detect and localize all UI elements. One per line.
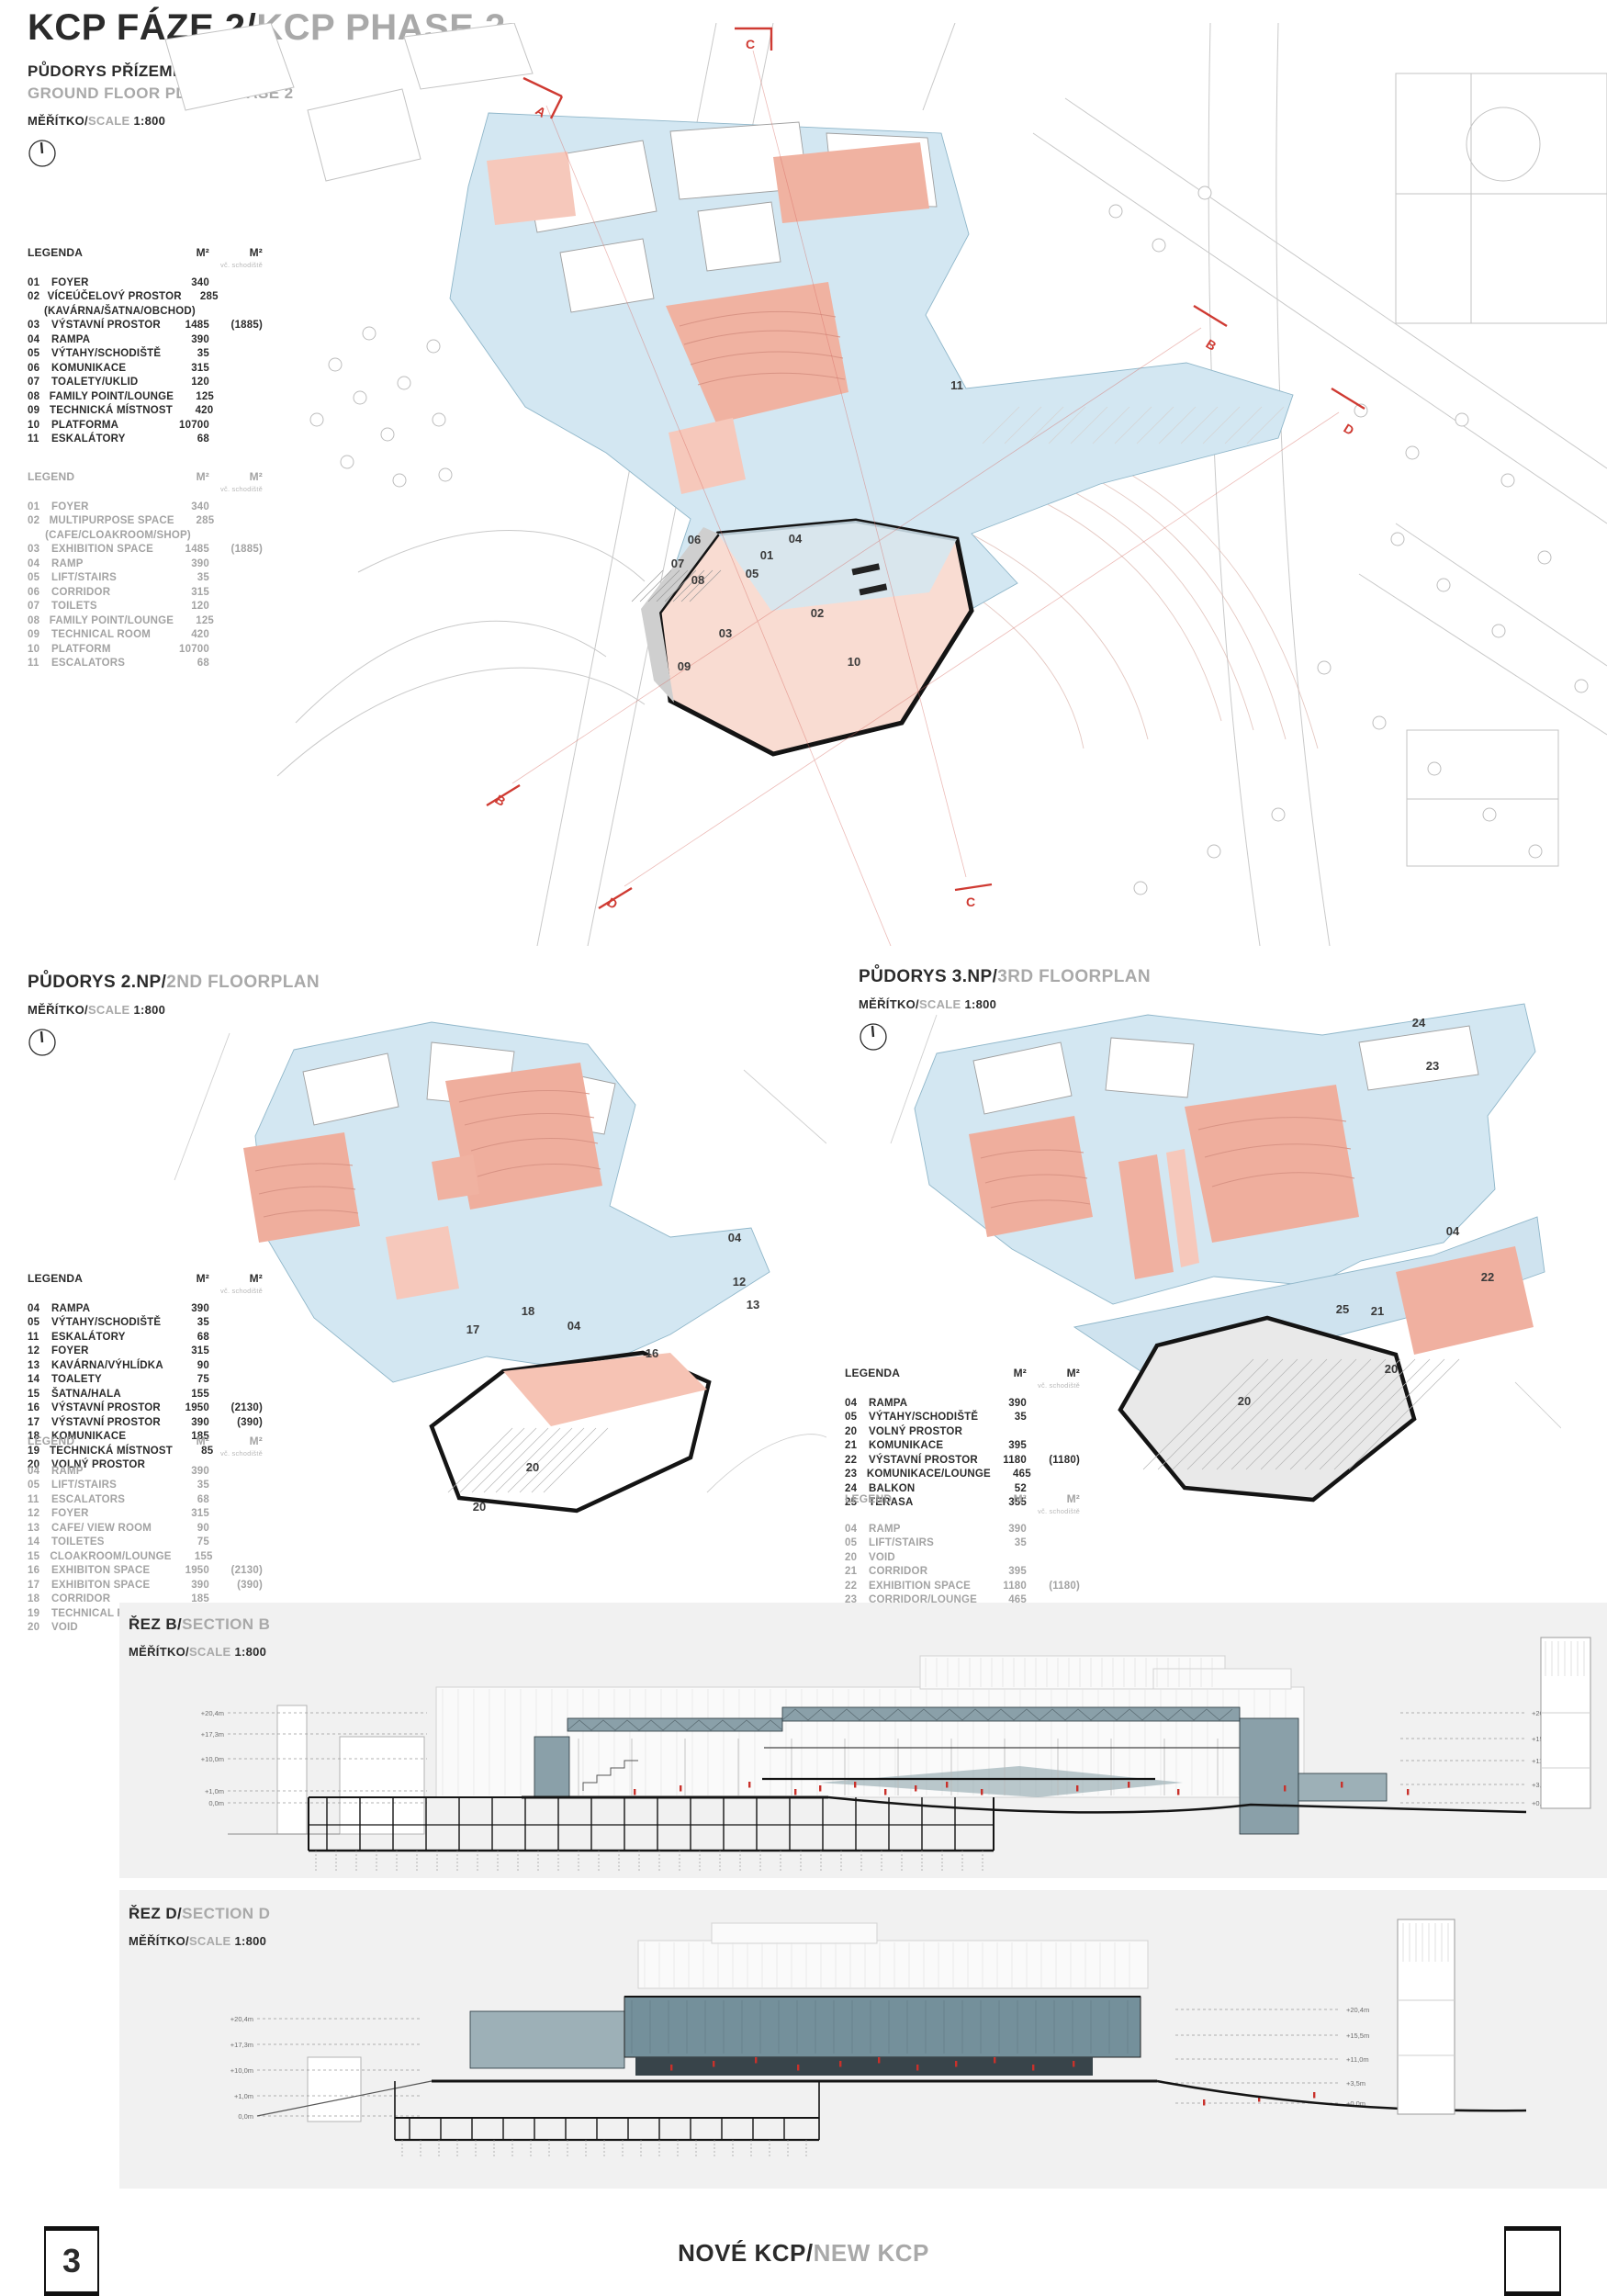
legend-row: 12FOYER315 — [28, 1507, 263, 1522]
svg-text:04: 04 — [568, 1319, 581, 1333]
svg-text:B: B — [492, 792, 508, 809]
svg-text:20: 20 — [1385, 1362, 1398, 1376]
legend-row: 15ŠATNA/HALA155 — [28, 1388, 263, 1402]
svg-text:10: 10 — [848, 655, 860, 669]
ground-floor-plan: A C B D B D C 01 02 03 04 05 06 07 08 09… — [129, 23, 1607, 946]
svg-text:+11,0m: +11,0m — [1346, 2055, 1369, 2064]
forum-hall-fan — [243, 1132, 360, 1243]
legend-row: 11ESCALATORS68 — [28, 1493, 263, 1508]
svg-text:+1,0m: +1,0m — [205, 1787, 224, 1795]
legend-row: 05VÝTAHY/SCHODIŠTĚ35 — [845, 1411, 1080, 1425]
legend-row: 17VÝSTAVNÍ PROSTOR390(390) — [28, 1416, 263, 1431]
svg-text:0,0m: 0,0m — [208, 1799, 224, 1807]
legend-row: 21KOMUNIKACE395 — [845, 1439, 1080, 1454]
svg-text:04: 04 — [1446, 1224, 1460, 1238]
svg-text:12: 12 — [733, 1275, 746, 1289]
legend-header: LEGENDM²M²vč. schodiště — [28, 1435, 263, 1449]
legend-row: 17EXHIBITON SPACE390(390) — [28, 1579, 263, 1593]
legend-row: 05LIFT/STAIRS35 — [845, 1536, 1080, 1551]
svg-text:25: 25 — [1336, 1302, 1349, 1316]
hall-block-west — [487, 152, 576, 225]
legend-row: 14TOILETES75 — [28, 1536, 263, 1550]
svg-text:01: 01 — [760, 548, 773, 562]
svg-text:24: 24 — [1412, 1016, 1426, 1030]
section-b-drawing: +20,4m +17,3m +10,0m +1,0m 0,0m +20,4m +… — [119, 1603, 1607, 1878]
legend-row: 04RAMPA390 — [845, 1397, 1080, 1412]
svg-text:+10,0m: +10,0m — [201, 1755, 224, 1763]
svg-text:04: 04 — [728, 1231, 742, 1244]
svg-text:05: 05 — [746, 567, 759, 580]
right-tower — [1398, 1919, 1455, 2114]
svg-text:+10,0m: +10,0m — [230, 2066, 253, 2075]
section-d-title: ŘEZ D/SECTION D MĚŘÍTKO/SCALE 1:800 — [129, 1903, 270, 1953]
legend-row: 04RAMP390 — [28, 1465, 263, 1480]
svg-text:+20,4m: +20,4m — [201, 1709, 224, 1717]
legend-row: 11ESKALÁTORY68 — [28, 1331, 263, 1345]
congress-hall-fan — [1185, 1085, 1359, 1243]
svg-text:03: 03 — [719, 626, 732, 640]
section-d-drawing: +20,4m +17,3m +10,0m +1,0m 0,0m +20,4m +… — [119, 1890, 1607, 2189]
svg-text:02: 02 — [811, 606, 824, 620]
svg-text:11: 11 — [950, 378, 963, 392]
svg-text:23: 23 — [1426, 1059, 1439, 1073]
legend-row: 22VÝSTAVNÍ PROSTOR1180(1180) — [845, 1454, 1080, 1469]
footer-title: NOVÉ KCP/NEW KCP — [0, 2239, 1607, 2268]
section-b-title: ŘEZ B/SECTION B MĚŘÍTKO/SCALE 1:800 — [129, 1614, 270, 1663]
legend-header: LEGENDAM²M²vč. schodiště — [28, 1272, 263, 1287]
svg-text:04: 04 — [789, 532, 803, 546]
svg-text:C: C — [966, 895, 975, 909]
svg-text:18: 18 — [522, 1304, 534, 1318]
svg-text:+15,5m: +15,5m — [1346, 2032, 1369, 2040]
legend-row: 13KAVÁRNA/VÝHLÍDKA90 — [28, 1359, 263, 1374]
new-hall — [432, 1353, 709, 1511]
section-d-scale: MĚŘÍTKO/SCALE 1:800 — [129, 1930, 270, 1953]
svg-text:07: 07 — [671, 557, 684, 570]
new-hall — [641, 521, 972, 754]
legend-header: LEGENDAM²M²vč. schodiště — [845, 1367, 1080, 1381]
legend-row: 16EXHIBITON SPACE1950(2130) — [28, 1564, 263, 1579]
legend-row: 22EXHIBITION SPACE1180(1180) — [845, 1580, 1080, 1594]
legend-row: 20VOID — [845, 1551, 1080, 1566]
svg-text:+20,4m: +20,4m — [230, 2015, 253, 2023]
svg-text:+17,3m: +17,3m — [201, 1730, 224, 1739]
svg-text:22: 22 — [1481, 1270, 1494, 1284]
svg-text:21: 21 — [1371, 1304, 1384, 1318]
north-icon — [28, 139, 57, 168]
svg-text:+3,5m: +3,5m — [1346, 2079, 1365, 2088]
svg-text:20: 20 — [526, 1460, 539, 1474]
forum-hall-fan — [969, 1116, 1093, 1237]
svg-text:C: C — [746, 37, 755, 51]
section-b-scale: MĚŘÍTKO/SCALE 1:800 — [129, 1641, 270, 1663]
legend-row: 12FOYER315 — [28, 1345, 263, 1359]
legend-row: 04RAMP390 — [845, 1523, 1080, 1537]
svg-text:D: D — [604, 895, 620, 912]
svg-text:20: 20 — [473, 1500, 486, 1514]
legend-row: 04RAMPA390 — [28, 1302, 263, 1317]
svg-text:+20,4m: +20,4m — [1346, 2006, 1369, 2014]
legend-row: 21CORRIDOR395 — [845, 1565, 1080, 1580]
svg-text:+17,3m: +17,3m — [230, 2041, 253, 2049]
small-block — [432, 1154, 479, 1200]
svg-text:+1,0m: +1,0m — [234, 2092, 253, 2100]
legend-row: 20VOLNÝ PROSTOR — [845, 1425, 1080, 1440]
svg-text:20: 20 — [1238, 1394, 1251, 1408]
svg-text:16: 16 — [646, 1346, 658, 1360]
legend-row: 16VÝSTAVNÍ PROSTOR1950(2130) — [28, 1401, 263, 1416]
legend-row: 05VÝTAHY/SCHODIŠTĚ35 — [28, 1316, 263, 1331]
svg-text:08: 08 — [691, 573, 704, 587]
multipurpose-block — [386, 1226, 459, 1300]
left-context-building — [308, 2057, 361, 2122]
legend-row: 13CAFE/ VIEW ROOM90 — [28, 1522, 263, 1536]
legend-np3-cs: LEGENDAM²M²vč. schodiště04RAMPA39005VÝTA… — [845, 1367, 1080, 1511]
north-icon — [28, 1028, 57, 1057]
new-hall-roof — [1120, 1318, 1414, 1500]
svg-text:B: B — [1203, 336, 1219, 354]
presentation-board: KCP FÁZE 2/KCP PHASE 2 PŮDORYS PŘÍZEMÍ -… — [0, 0, 1607, 2296]
svg-text:D: D — [1341, 421, 1356, 438]
svg-text:09: 09 — [678, 659, 691, 673]
svg-text:0,0m: 0,0m — [238, 2112, 253, 2121]
legend-row: 05LIFT/STAIRS35 — [28, 1479, 263, 1493]
right-tower — [1541, 1638, 1590, 1808]
legend-row: 15CLOAKROOM/LOUNGE155 — [28, 1550, 263, 1565]
footer-empty-box — [1504, 2226, 1561, 2296]
svg-text:06: 06 — [688, 533, 701, 546]
svg-text:17: 17 — [466, 1322, 479, 1336]
legend-row: 14TOALETY75 — [28, 1373, 263, 1388]
legend-header: LEGENDM²M²vč. schodiště — [845, 1492, 1080, 1507]
legend-row: 23KOMUNIKACE/LOUNGE465 — [845, 1468, 1080, 1482]
svg-text:13: 13 — [747, 1298, 759, 1311]
